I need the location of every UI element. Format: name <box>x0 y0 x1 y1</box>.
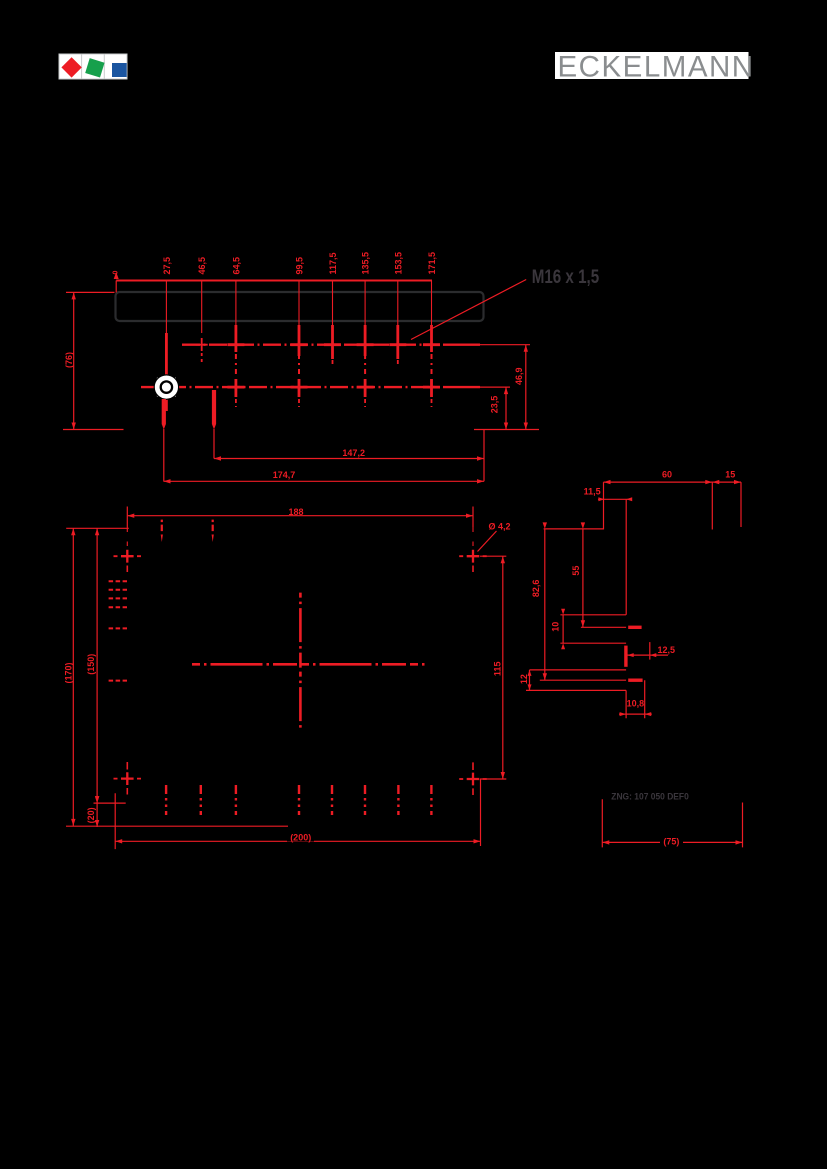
svg-text:12,5: 12,5 <box>658 645 676 655</box>
svg-text:64,5: 64,5 <box>231 257 241 275</box>
svg-text:(20): (20) <box>86 807 96 823</box>
svg-text:23,5: 23,5 <box>489 396 499 414</box>
svg-text:153,5: 153,5 <box>393 252 403 275</box>
svg-text:27,5: 27,5 <box>162 257 172 275</box>
svg-text:117,5: 117,5 <box>328 252 338 274</box>
svg-text:15: 15 <box>725 470 735 480</box>
svg-text:171,5: 171,5 <box>427 252 437 275</box>
svg-text:82,6: 82,6 <box>531 580 541 598</box>
svg-text:60: 60 <box>662 470 672 480</box>
svg-text:ECKELMANN: ECKELMANN <box>558 51 755 84</box>
svg-text:147,2: 147,2 <box>342 448 365 458</box>
svg-text:M16 x 1,5: M16 x 1,5 <box>532 267 600 288</box>
svg-text:12: 12 <box>519 674 529 684</box>
svg-text:10: 10 <box>550 622 560 632</box>
svg-text:11,5: 11,5 <box>584 486 601 496</box>
svg-text:(76): (76) <box>64 352 74 368</box>
svg-text:Ø 4,2: Ø 4,2 <box>489 522 511 532</box>
svg-text:174,7: 174,7 <box>273 470 296 480</box>
svg-text:55: 55 <box>571 566 581 576</box>
svg-text:0: 0 <box>113 271 120 275</box>
svg-text:(200): (200) <box>290 833 311 843</box>
svg-text:115: 115 <box>493 662 503 677</box>
svg-text:46,5: 46,5 <box>197 257 207 275</box>
svg-text:135,5: 135,5 <box>361 252 371 275</box>
svg-text:10,8: 10,8 <box>627 699 645 709</box>
svg-text:(170): (170) <box>63 662 73 683</box>
svg-text:46,9: 46,9 <box>514 367 524 385</box>
svg-text:188: 188 <box>288 507 303 517</box>
svg-text:(75): (75) <box>663 837 679 847</box>
svg-text:ZNG: 107 050 DEF0: ZNG: 107 050 DEF0 <box>611 792 689 803</box>
svg-text:(150): (150) <box>86 654 96 675</box>
svg-text:99,5: 99,5 <box>295 257 305 275</box>
